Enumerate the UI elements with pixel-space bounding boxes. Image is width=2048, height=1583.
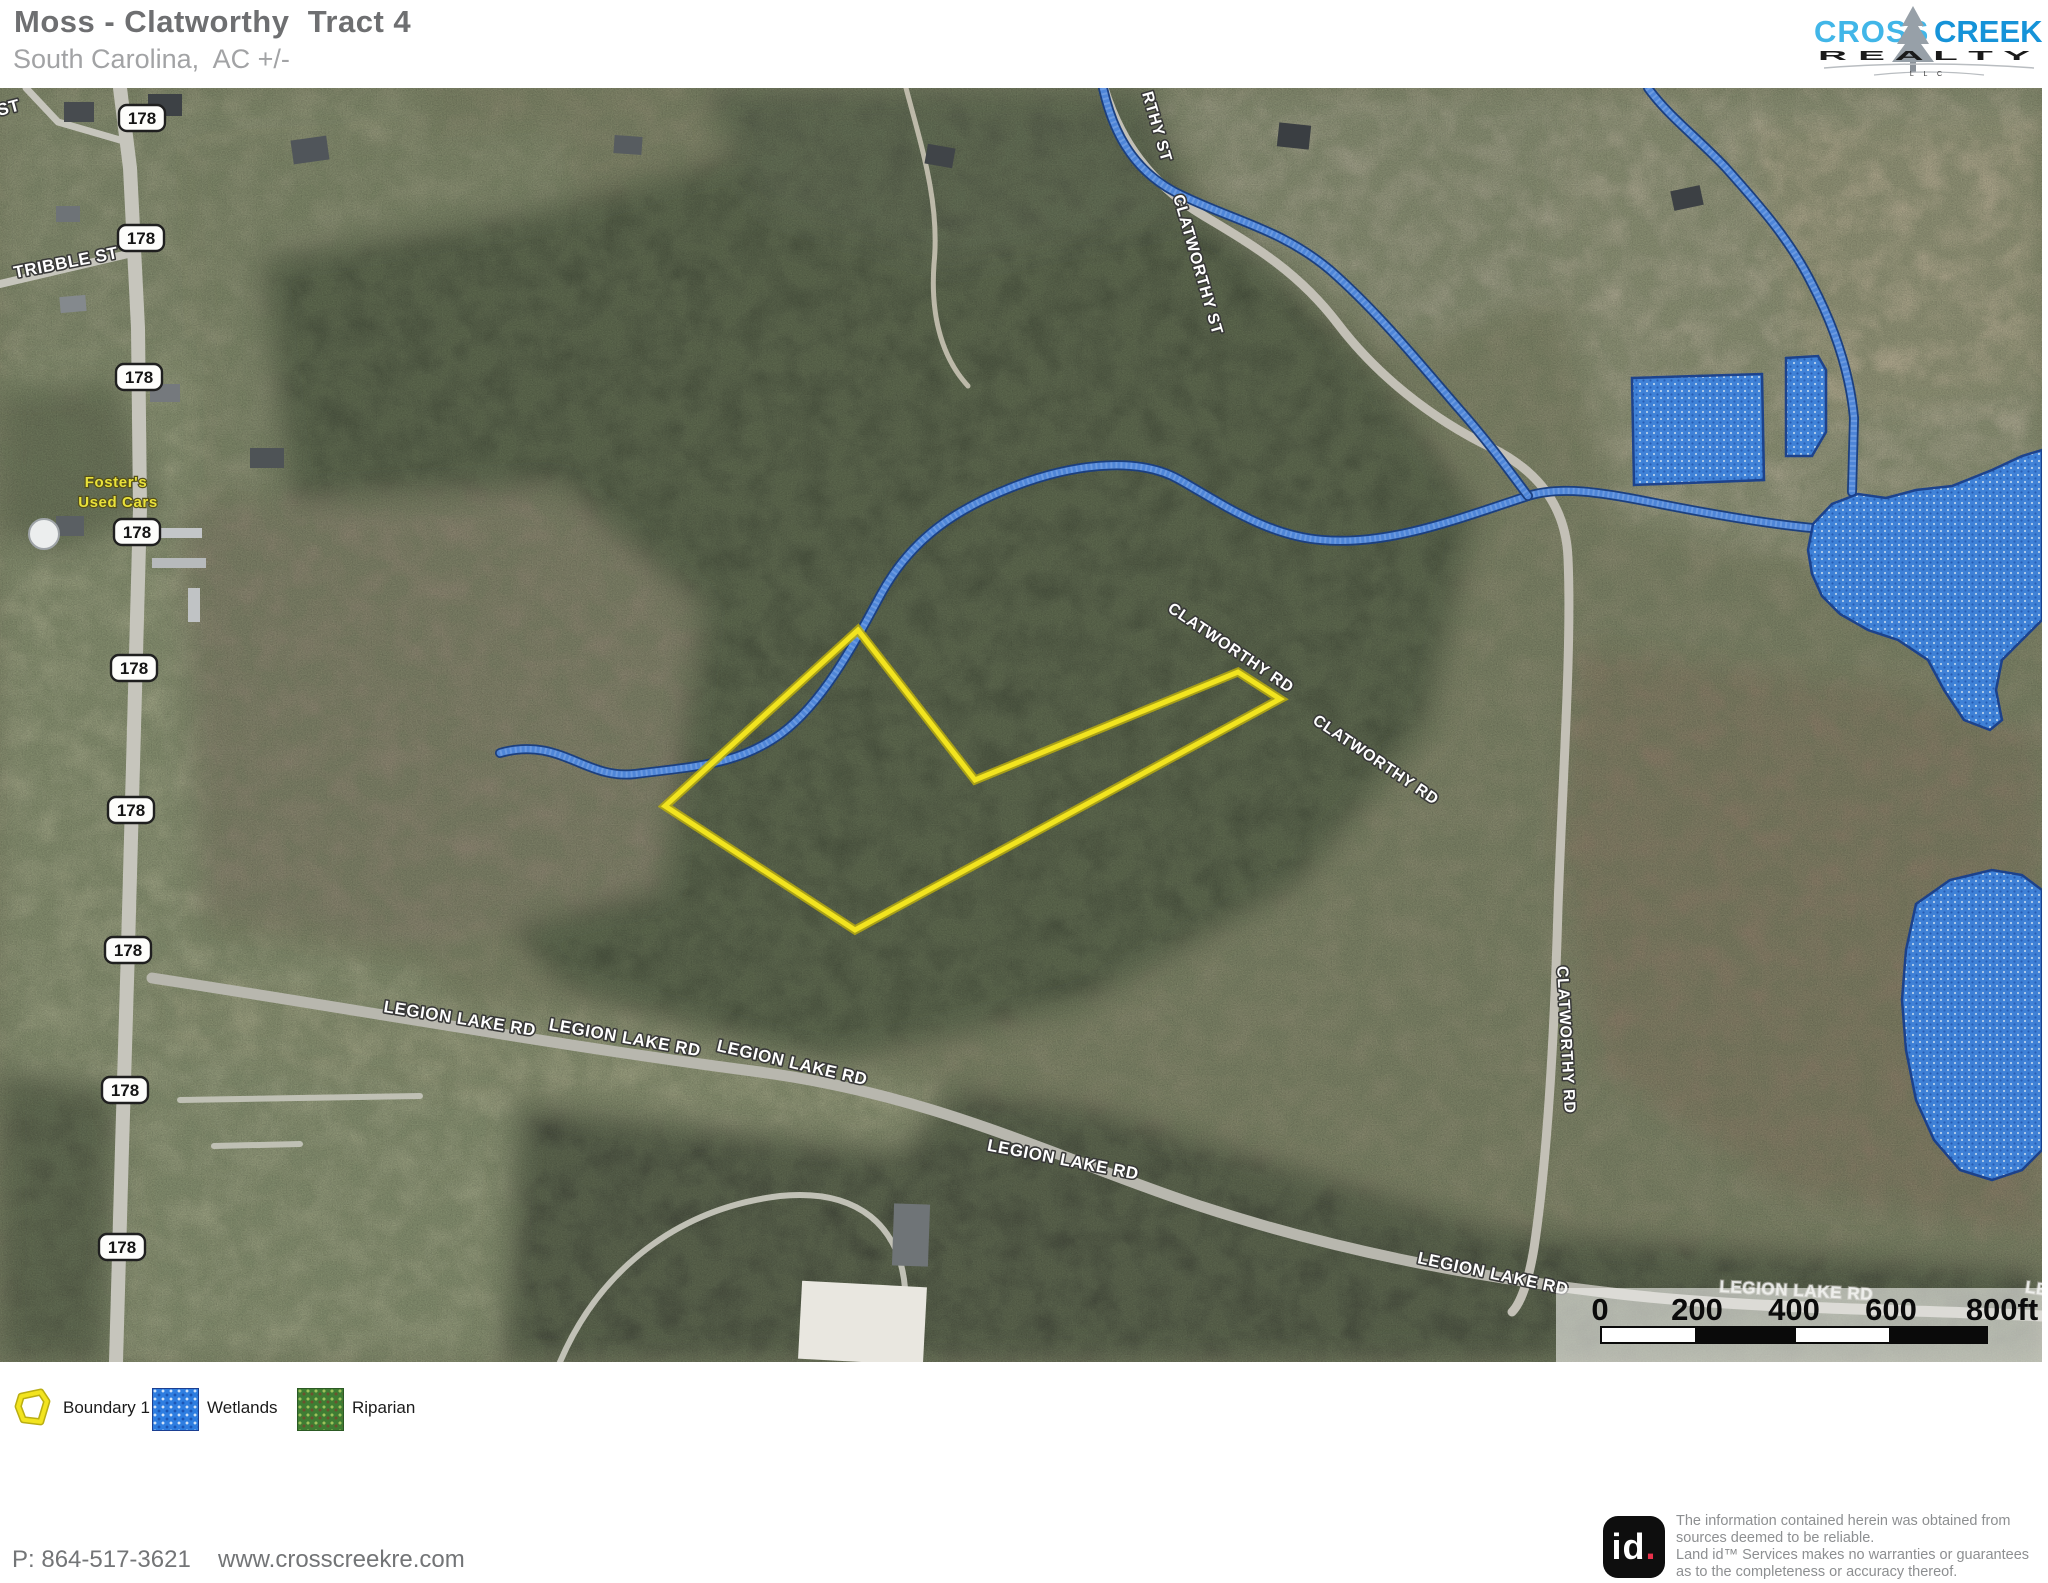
phone-number: P: 864-517-3621	[12, 1546, 191, 1574]
riparian-swatch-icon	[297, 1388, 344, 1431]
route-178-shield: 178	[116, 364, 162, 390]
disclaimer-line-1: The information contained herein was obt…	[1676, 1513, 2048, 1530]
logo-swoosh	[1824, 64, 2034, 68]
svg-text:178: 178	[128, 109, 156, 128]
legend-label-boundary: Boundary 1	[63, 1398, 150, 1418]
route-178-shield: 178	[118, 225, 164, 251]
svg-text:178: 178	[125, 368, 153, 387]
aerial-map-svg: 178178178178178178178178178 STTRIBBLE ST…	[0, 88, 2042, 1362]
route-178-shield: 178	[119, 105, 165, 131]
route-178-shield: 178	[102, 1077, 148, 1103]
svg-text:200: 200	[1671, 1292, 1723, 1327]
disclaimer-line-3: Land id™ Services makes no warranties or…	[1676, 1547, 2048, 1564]
logo-llc-text: L L C	[1910, 71, 1946, 78]
map-viewport[interactable]: 178178178178178178178178178 STTRIBBLE ST…	[0, 88, 2042, 1362]
disclaimer-text: The information contained herein was obt…	[1676, 1513, 2048, 1581]
route-178-shield: 178	[114, 519, 160, 545]
legend-label-wetlands: Wetlands	[207, 1398, 278, 1418]
cross-creek-logo: CROSS CREEK R E A L T Y L L C	[1812, 2, 2044, 84]
svg-text:178: 178	[114, 941, 142, 960]
route-178-shield: 178	[111, 655, 157, 681]
map-label: Foster's	[85, 474, 148, 491]
route-178-shield: 178	[105, 937, 151, 963]
boundary-swatch-icon	[10, 1388, 55, 1429]
scalebar: 0200400600800ft	[1556, 1288, 2042, 1362]
legend-label-riparian: Riparian	[352, 1398, 415, 1418]
svg-text:178: 178	[123, 523, 151, 542]
disclaimer-line-2: sources deemed to be reliable.	[1676, 1530, 2048, 1547]
route-178-shield: 178	[99, 1234, 145, 1260]
website-url: www.crosscreekre.com	[218, 1546, 465, 1574]
landid-logo: id.	[1603, 1516, 1665, 1578]
page-title: Moss - Clatworthy Tract 4	[14, 4, 411, 40]
noise-texture	[0, 88, 2042, 1362]
svg-text:178: 178	[111, 1081, 139, 1100]
logo-creek-text: CREEK	[1934, 14, 2043, 49]
svg-text:400: 400	[1768, 1292, 1820, 1327]
page-subtitle: South Carolina, AC +/-	[13, 44, 290, 75]
map-label: Used Cars	[78, 494, 158, 511]
svg-text:600: 600	[1865, 1292, 1917, 1327]
svg-text:178: 178	[117, 801, 145, 820]
landid-logo-text: id	[1611, 1526, 1645, 1568]
svg-text:178: 178	[108, 1238, 136, 1257]
logo-realty-text: R E A L T Y	[1818, 48, 2031, 63]
svg-text:0: 0	[1591, 1292, 1608, 1327]
svg-text:178: 178	[127, 229, 155, 248]
landid-logo-dot: .	[1645, 1526, 1656, 1568]
svg-text:800ft: 800ft	[1966, 1292, 2038, 1327]
route-178-shield: 178	[108, 797, 154, 823]
wetlands-swatch-icon	[152, 1388, 199, 1431]
svg-text:178: 178	[120, 659, 148, 678]
disclaimer-line-4: as to the completeness or accuracy there…	[1676, 1564, 2048, 1581]
